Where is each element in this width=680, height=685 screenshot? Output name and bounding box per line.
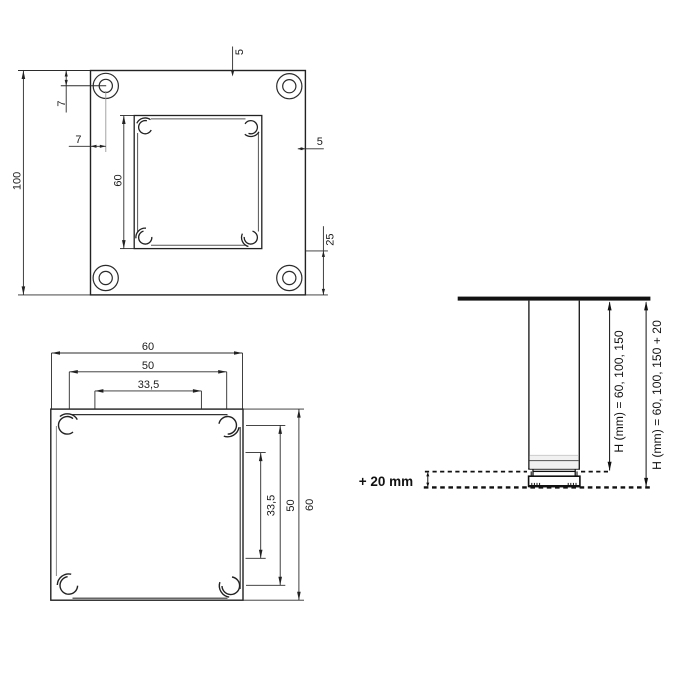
svg-text:7: 7	[75, 134, 81, 146]
svg-text:100: 100	[12, 172, 24, 190]
svg-text:7: 7	[56, 100, 68, 106]
svg-text:5: 5	[317, 136, 323, 148]
svg-text:H (mm) = 60, 100, 150 + 20: H (mm) = 60, 100, 150 + 20	[650, 320, 664, 470]
svg-text:5: 5	[234, 49, 246, 55]
svg-text:+ 20 mm: + 20 mm	[359, 474, 413, 489]
svg-text:H (mm) = 60, 100, 150: H (mm) = 60, 100, 150	[612, 330, 626, 452]
svg-text:25: 25	[324, 233, 336, 245]
svg-text:50: 50	[142, 360, 154, 372]
svg-text:33,5: 33,5	[138, 379, 159, 391]
svg-text:60: 60	[142, 341, 154, 353]
svg-text:60: 60	[304, 499, 316, 511]
svg-text:60: 60	[112, 174, 124, 186]
svg-text:33,5: 33,5	[266, 495, 278, 516]
svg-text:50: 50	[285, 499, 297, 511]
